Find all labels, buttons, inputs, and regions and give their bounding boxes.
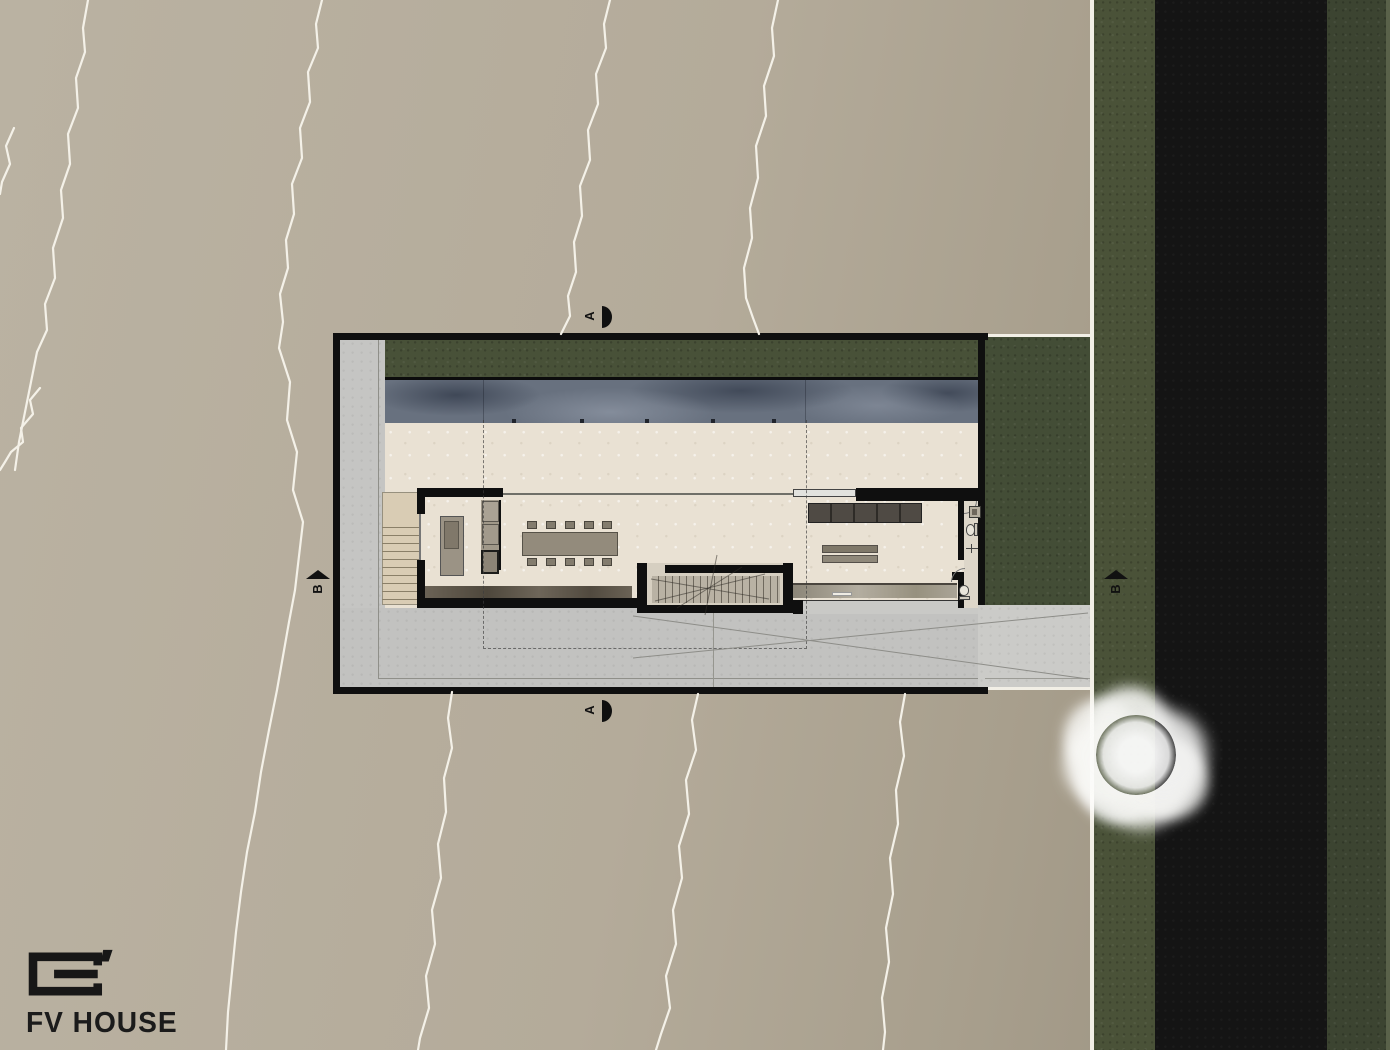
side-garden: [985, 337, 1090, 605]
tv-console: [808, 503, 922, 523]
kitchen-wall-left-upper: [417, 488, 425, 514]
coffee-table: [822, 555, 878, 563]
entry-door-line: [419, 514, 421, 560]
green-verge-left: [1094, 0, 1155, 1050]
street: [1155, 0, 1327, 1050]
tree-canopy: [1096, 715, 1176, 795]
basin-faucet: [966, 548, 978, 549]
setback-line-vertical: [378, 340, 379, 678]
green-edge-strip: [1386, 0, 1390, 1050]
section-marker-a-top: A: [582, 304, 622, 334]
marker-letter: B: [1108, 581, 1124, 597]
green-verge-right: [1327, 0, 1390, 1050]
section-marker-b-right: B: [1102, 570, 1132, 600]
toilet: [959, 585, 969, 596]
marker-letter: A: [582, 702, 598, 718]
site-plan-canvas: A A B B FV HOUSE: [0, 0, 1390, 1050]
logo-mark-icon: [26, 948, 118, 1000]
coffee-table: [822, 545, 878, 553]
marker-letter: B: [310, 581, 326, 597]
setback-line-horizontal: [378, 678, 978, 679]
toilet-tank: [974, 523, 978, 536]
marker-pointer: [1104, 570, 1128, 579]
site-border-right: [978, 333, 985, 605]
logo: FV HOUSE: [26, 948, 246, 1043]
driveway-joint-line: [985, 678, 1090, 679]
living-wall-top: [856, 488, 978, 501]
pool-divider: [483, 377, 484, 423]
lap-pool: [385, 377, 978, 423]
marker-pointer: [306, 570, 330, 579]
plot-boundary-line-vertical: [1090, 0, 1094, 1050]
roof-overhang-outline: [483, 420, 807, 649]
site-border-bottom: [333, 687, 988, 694]
marker-pointer: [602, 700, 612, 722]
south-bench: [793, 583, 957, 598]
logo-text: FV HOUSE: [26, 1007, 239, 1040]
south-deck: [803, 600, 978, 614]
basin-faucet: [971, 544, 972, 553]
pool-divider: [805, 377, 806, 423]
site-border-top: [333, 333, 988, 340]
laundry-box-drum: [972, 509, 977, 515]
marker-letter: A: [582, 308, 598, 324]
section-marker-b-left: B: [304, 570, 334, 600]
entry-stair-treads: [382, 520, 420, 605]
site-interior: [340, 340, 978, 687]
driveway: [978, 605, 1090, 687]
perimeter-hedge: [385, 340, 978, 377]
section-marker-a-bottom: A: [582, 698, 622, 728]
site-border-left: [333, 333, 340, 694]
toilet-tank: [959, 596, 970, 600]
kitchen-island-sink: [444, 521, 459, 549]
marker-pointer: [602, 306, 612, 328]
bench-object: [832, 592, 852, 596]
tree: [1058, 680, 1214, 830]
plot-boundary-line-top: [985, 334, 1090, 337]
